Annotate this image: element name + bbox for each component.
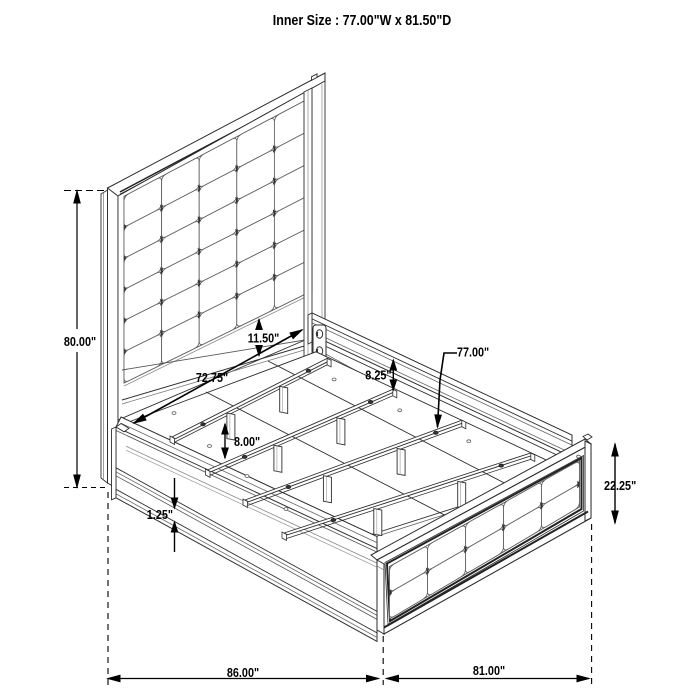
svg-text:86.00": 86.00" [227, 665, 259, 680]
svg-text:Inner Size : 77.00"W x 81.50"D: Inner Size : 77.00"W x 81.50"D [273, 11, 451, 28]
svg-text:77.00": 77.00" [457, 344, 489, 359]
svg-text:11.50": 11.50" [248, 330, 280, 345]
svg-text:22.25": 22.25" [604, 478, 636, 493]
svg-text:8.25": 8.25" [365, 367, 391, 382]
svg-text:81.00": 81.00" [473, 663, 505, 678]
svg-text:8.00": 8.00" [234, 434, 260, 449]
svg-text:80.00": 80.00" [64, 334, 96, 349]
svg-text:1.25": 1.25" [147, 507, 173, 522]
svg-text:72.75": 72.75" [196, 370, 228, 385]
